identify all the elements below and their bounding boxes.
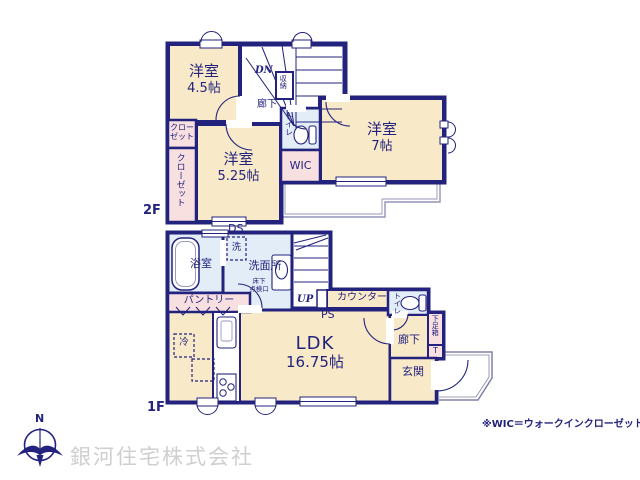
entrance-label: 玄関 — [390, 366, 436, 379]
room-name: 洋室 — [196, 151, 281, 169]
compass-rose — [17, 428, 63, 467]
shoebox-t-label: T — [428, 346, 443, 355]
room-name: LDK — [250, 333, 380, 354]
floorplan-page: 洋室 4.5帖 洋室 7帖 洋室 5.25帖 クロー ゼット クローゼット トイ… — [0, 0, 640, 480]
room-label-youshitsu-4-5: 洋室 4.5帖 — [168, 63, 240, 96]
wic-label: WIC — [281, 160, 320, 173]
closet-top-label: クロー ゼット — [168, 123, 196, 142]
company-watermark: 銀河住宅株式会社 — [70, 445, 254, 470]
floor2-balcony-inner — [285, 184, 437, 214]
kitchen-unit — [213, 312, 240, 402]
room-name: 洋室 — [168, 63, 240, 81]
wic-note: ※WIC＝ウォークインクローゼット — [482, 419, 640, 431]
floor-hatch-label: 床下 点検口 — [245, 278, 273, 293]
floor2-balcony — [282, 184, 440, 217]
compass-north-label: N — [35, 413, 44, 426]
room-size: 16.75帖 — [250, 354, 380, 372]
toilet-1f-label: トイレ — [392, 292, 401, 315]
ps-label: PS — [321, 309, 335, 322]
shoebox-label: 下足箱 — [431, 315, 439, 336]
room-size: 7帖 — [320, 139, 444, 154]
room-label-youshitsu-5-25: 洋室 5.25帖 — [196, 151, 281, 184]
floor2-label: 2F — [143, 203, 161, 218]
stairs-dn-label: DN — [255, 65, 273, 77]
pantry-label: パントリー — [168, 295, 250, 307]
ds-label: DS — [228, 223, 243, 236]
ldk-label: LDK 16.75帖 — [250, 333, 380, 372]
fridge-label: 冷 — [174, 337, 194, 348]
toilet-1f-fixture — [401, 295, 426, 311]
floorplan-drawing — [0, 0, 640, 480]
washer-label: 洗 — [227, 242, 246, 253]
room-name: 洋室 — [320, 121, 444, 139]
floor1-label: 1F — [147, 400, 165, 415]
hallway-2f-label: 廊下 — [257, 99, 277, 111]
counter-label: カウンター — [327, 292, 397, 304]
bath-label: 浴室 — [180, 258, 222, 271]
room-size: 4.5帖 — [168, 81, 240, 96]
washroom-label: 洗面所 — [241, 260, 289, 273]
hallway-1f-label: 廊下 — [389, 334, 429, 347]
ps-box — [317, 290, 327, 308]
room-size: 5.25帖 — [196, 169, 281, 184]
toilet-2f-label: トイレ — [284, 112, 293, 136]
closet-side-label: クローゼット — [174, 153, 185, 207]
room-label-youshitsu-7: 洋室 7帖 — [320, 121, 444, 154]
stairs-up-label: UP — [297, 294, 313, 306]
entrance-porch — [439, 352, 492, 400]
storage-label: 収納 — [279, 75, 287, 89]
